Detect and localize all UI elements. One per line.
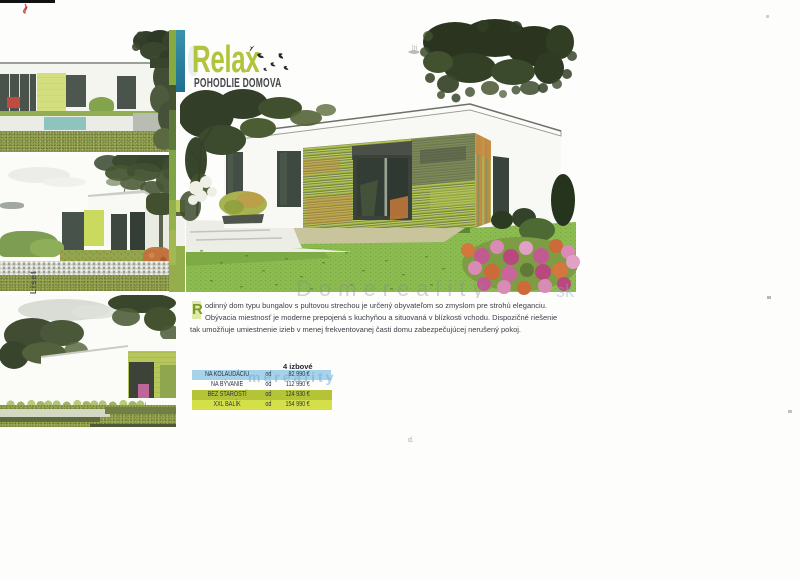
svg-text:sk: sk — [556, 281, 575, 298]
svg-text:Domereality: Domereality — [296, 276, 490, 298]
